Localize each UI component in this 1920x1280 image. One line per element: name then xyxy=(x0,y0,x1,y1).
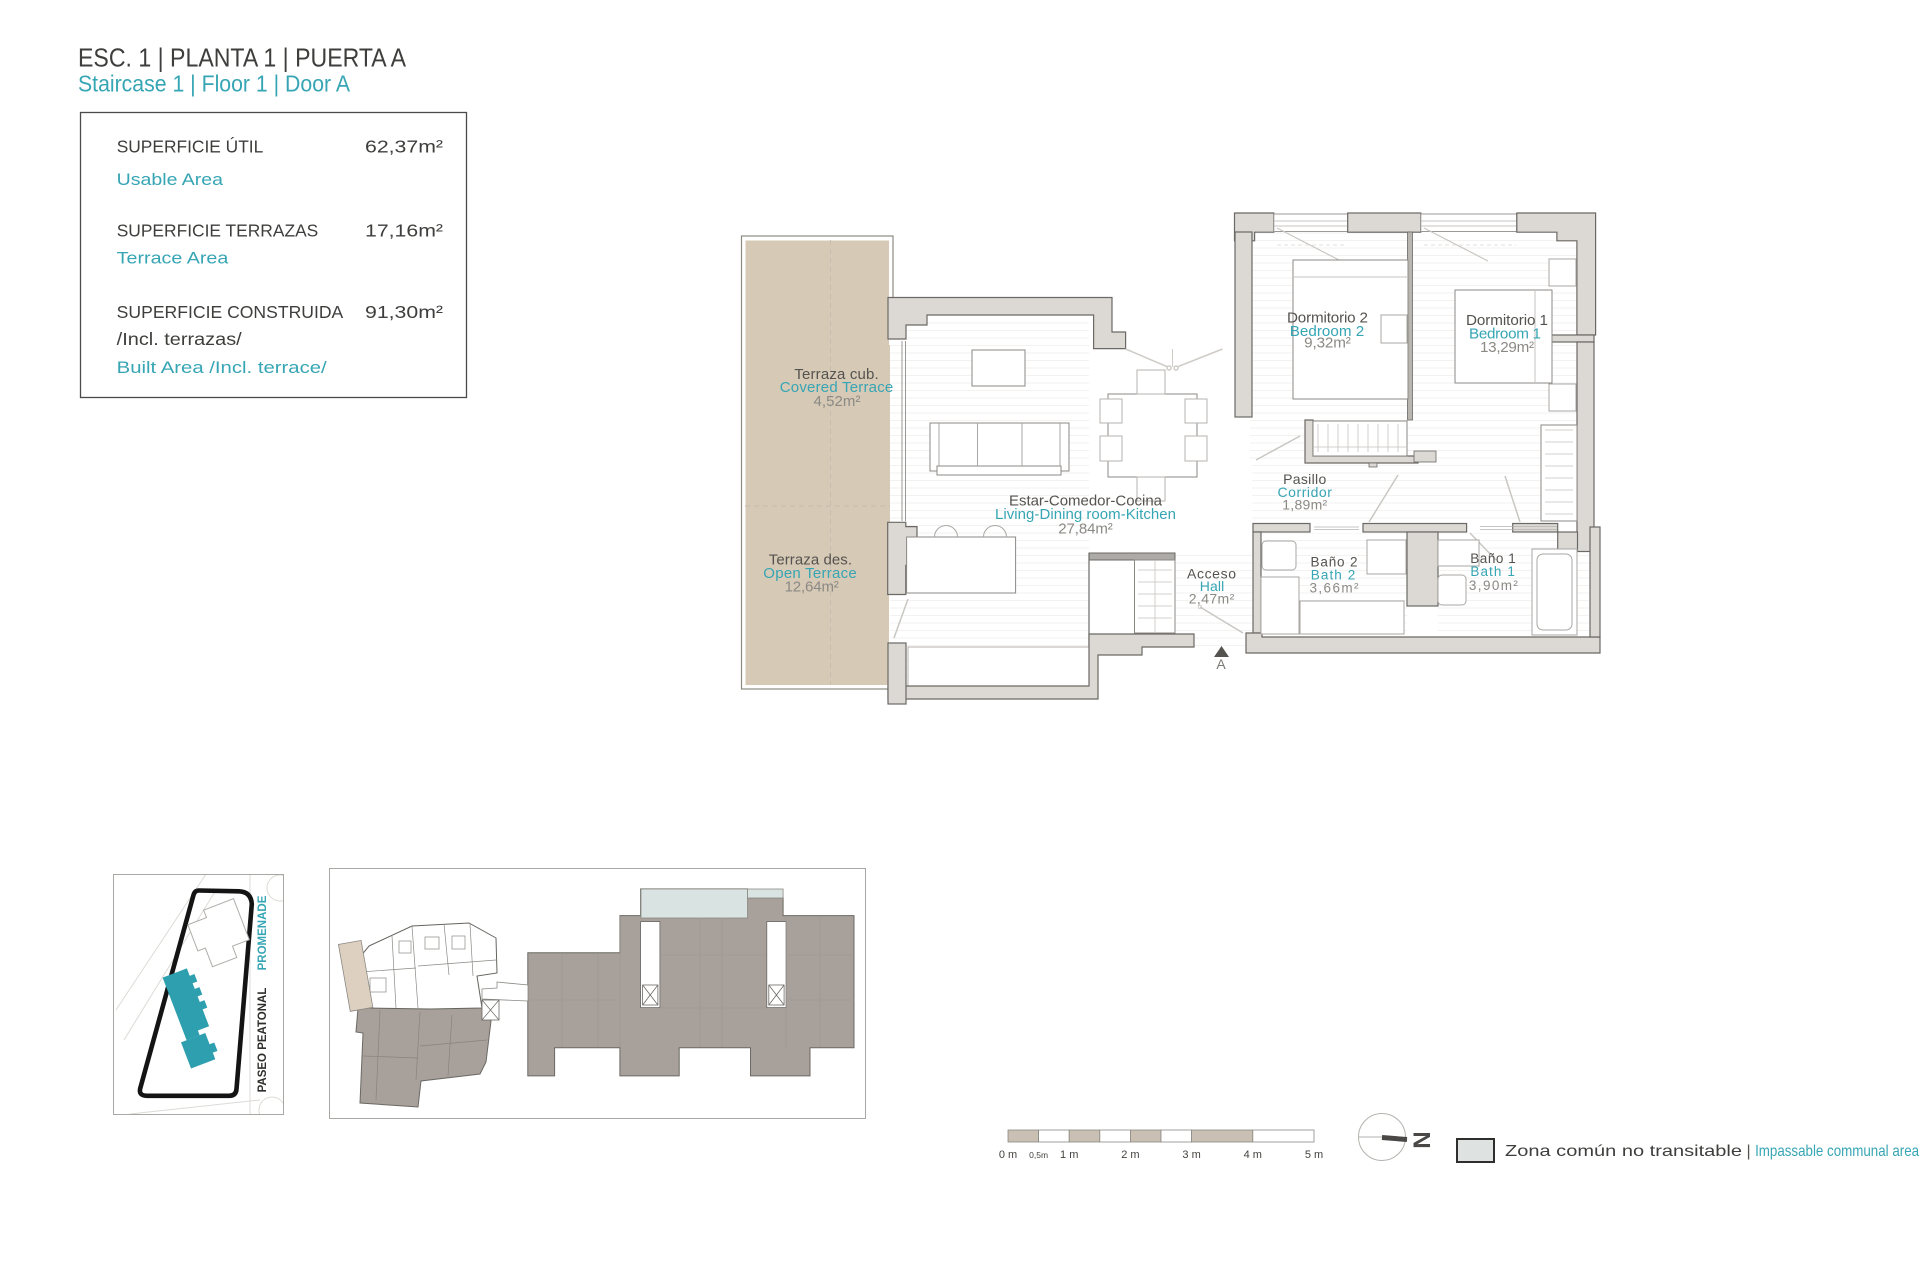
svg-text:SUPERFICIE CONSTRUIDA: SUPERFICIE CONSTRUIDA xyxy=(117,302,344,322)
svg-text:0,5m: 0,5m xyxy=(1029,1150,1048,1160)
svg-text:Zona común no transitable | Im: Zona común no transitable | Impassable c… xyxy=(1505,1143,1919,1160)
svg-text:5 m: 5 m xyxy=(1305,1149,1323,1161)
svg-text:13,29m²: 13,29m² xyxy=(1480,339,1534,356)
svg-text:Bath 1: Bath 1 xyxy=(1470,564,1515,579)
svg-text:PASEO PEATONAL: PASEO PEATONAL xyxy=(257,988,269,1093)
svg-text:62,37m²: 62,37m² xyxy=(365,137,443,157)
svg-text:2 m: 2 m xyxy=(1121,1149,1139,1161)
svg-text:1,89m²: 1,89m² xyxy=(1282,496,1327,512)
svg-text:ESC. 1 | PLANTA 1 | PUERTA A: ESC. 1 | PLANTA 1 | PUERTA A xyxy=(78,45,406,73)
svg-text:27,84m²: 27,84m² xyxy=(1058,521,1113,538)
svg-text:Terrace Area: Terrace Area xyxy=(117,248,229,267)
svg-text:3,90m²: 3,90m² xyxy=(1469,578,1519,593)
svg-text:SUPERFICIE TERRAZAS: SUPERFICIE TERRAZAS xyxy=(117,221,319,241)
svg-text:12,64m²: 12,64m² xyxy=(785,579,839,596)
svg-text:A: A xyxy=(1216,656,1226,672)
svg-text:3,66m²: 3,66m² xyxy=(1310,581,1360,596)
svg-text:4 m: 4 m xyxy=(1244,1149,1262,1161)
svg-text:3 m: 3 m xyxy=(1182,1149,1200,1161)
svg-text:SUPERFICIE ÚTIL: SUPERFICIE ÚTIL xyxy=(117,136,264,157)
svg-text:9,32m²: 9,32m² xyxy=(1304,335,1351,352)
svg-text:PROMENADE: PROMENADE xyxy=(257,895,269,970)
svg-text:Usable Area: Usable Area xyxy=(117,170,224,189)
svg-text:91,30m²: 91,30m² xyxy=(365,302,443,322)
svg-text:/Incl. terrazas/: /Incl. terrazas/ xyxy=(117,329,242,349)
svg-text:N: N xyxy=(1408,1131,1435,1148)
svg-text:2,47m²: 2,47m² xyxy=(1189,591,1235,607)
svg-text:0 m: 0 m xyxy=(999,1149,1017,1161)
svg-text:Staircase 1 | Floor 1 | Door A: Staircase 1 | Floor 1 | Door A xyxy=(78,71,351,97)
svg-text:4,52m²: 4,52m² xyxy=(814,393,861,410)
svg-text:Built Area /Incl. terrace/: Built Area /Incl. terrace/ xyxy=(117,358,327,377)
svg-text:17,16m²: 17,16m² xyxy=(365,221,443,241)
svg-text:1 m: 1 m xyxy=(1060,1149,1078,1161)
